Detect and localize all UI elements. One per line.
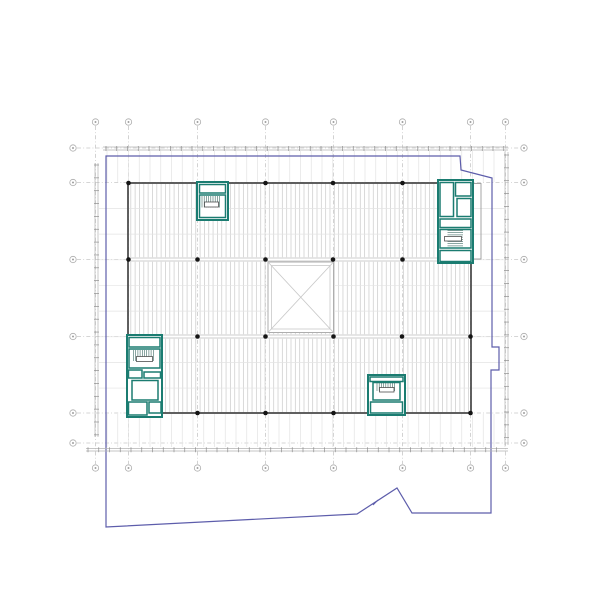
column-dot: [126, 257, 131, 262]
column-dot: [468, 334, 473, 339]
stair-landing: [137, 357, 153, 362]
column-dot: [400, 257, 405, 262]
grid-bubble-label-mark: [470, 121, 472, 123]
grid-bubble-label-mark: [72, 442, 74, 444]
column-dot: [468, 411, 473, 416]
grid-bubble-label-mark: [523, 259, 525, 261]
stair-core-top-left: [197, 182, 228, 220]
floor-plan-viewport: [0, 0, 600, 600]
grid-bubble-label-mark: [197, 467, 199, 469]
column-dot: [195, 411, 200, 416]
grid-bubble-label-mark: [72, 336, 74, 338]
grid-bubble-label-mark: [523, 147, 525, 149]
grid-bubble-label-mark: [333, 121, 335, 123]
grid-bubble-label-mark: [197, 121, 199, 123]
stair-landing: [205, 202, 219, 207]
column-dot: [263, 411, 268, 416]
grid-bubble-label-mark: [402, 467, 404, 469]
column-dot: [126, 181, 131, 186]
grid-bubble-label-mark: [505, 467, 507, 469]
grid-bubble-label-mark: [402, 121, 404, 123]
grid-bubble-label-mark: [128, 467, 130, 469]
grid-bubble-label-mark: [72, 147, 74, 149]
column-dot: [263, 334, 268, 339]
column-dot: [331, 411, 336, 416]
grid-bubble-label-mark: [523, 442, 525, 444]
column-dot: [331, 257, 336, 262]
stair-landing: [380, 388, 395, 393]
grid-bubble-label-mark: [523, 412, 525, 414]
column-dot: [400, 181, 405, 186]
column-dot: [400, 334, 405, 339]
column-dot: [195, 334, 200, 339]
grid-bubble-label-mark: [72, 259, 74, 261]
stair-landing: [445, 237, 462, 242]
column-dot: [331, 334, 336, 339]
grid-bubble-label-mark: [95, 121, 97, 123]
grid-bubble-label-mark: [333, 467, 335, 469]
column-dot: [331, 181, 336, 186]
column-dot: [195, 257, 200, 262]
grid-bubble-label-mark: [523, 336, 525, 338]
column-dot: [263, 181, 268, 186]
grid-bubble-label-mark: [505, 121, 507, 123]
column-dot: [263, 257, 268, 262]
floor-plan-canvas: [0, 0, 600, 600]
grid-bubble-label-mark: [523, 182, 525, 184]
grid-bubble-label-mark: [95, 467, 97, 469]
grid-bubble-label-mark: [72, 412, 74, 414]
grid-bubble-label-mark: [72, 182, 74, 184]
grid-bubble-label-mark: [265, 467, 267, 469]
grid-bubble-label-mark: [470, 467, 472, 469]
grid-bubble-label-mark: [128, 121, 130, 123]
grid-bubble-label-mark: [265, 121, 267, 123]
